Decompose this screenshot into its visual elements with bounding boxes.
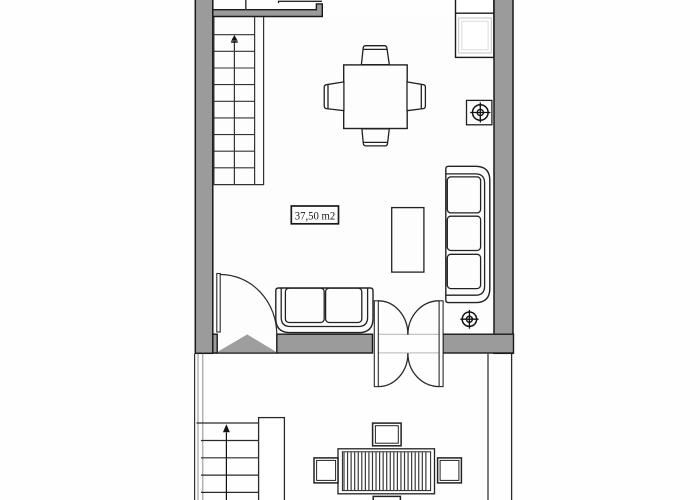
- svg-text:37,50 m2: 37,50 m2: [295, 208, 336, 222]
